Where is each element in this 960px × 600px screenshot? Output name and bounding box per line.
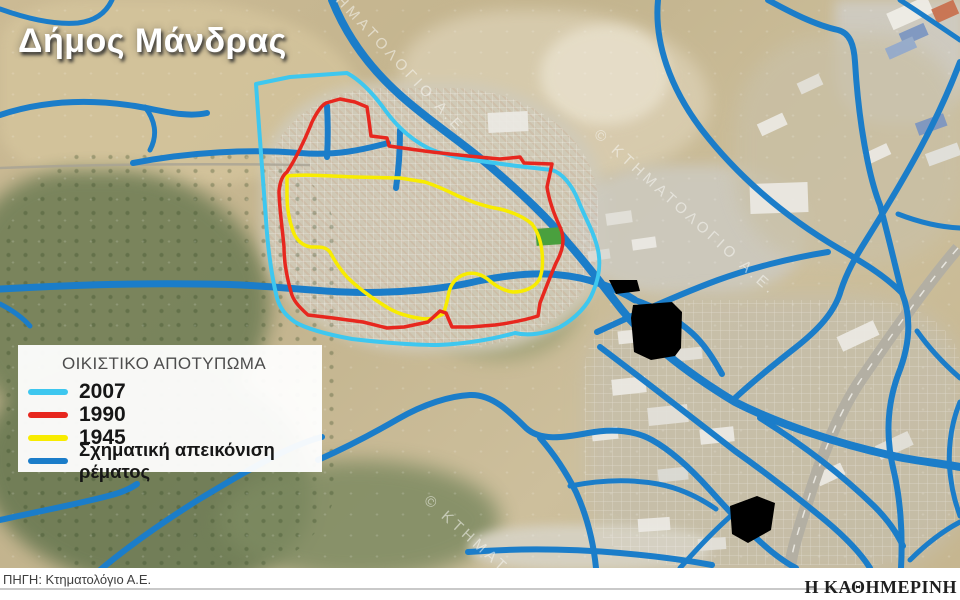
highway <box>790 248 958 568</box>
source-note: ΠΗΓΗ: Κτηματολόγιο Α.Ε. <box>3 572 151 587</box>
swatch-stream <box>28 458 68 464</box>
swatch-1945 <box>28 435 68 441</box>
legend: ΟΙΚΙΣΤΙΚΟ ΑΠΟΤΥΠΩΜΑ 2007 1990 1945 Σχημα… <box>18 345 322 472</box>
footer: ΠΗΓΗ: Κτηματολόγιο Α.Ε. Η ΚΑΘΗΜΕΡΙΝΗ <box>0 568 960 600</box>
legend-row-1990: 1990 <box>28 403 314 426</box>
legend-label-2007: 2007 <box>79 380 126 404</box>
map-overlay <box>0 0 960 568</box>
swatch-2007 <box>28 389 68 395</box>
legend-label-stream: Σχηματική απεικόνιση ρέματος <box>79 439 314 483</box>
footer-divider <box>0 588 852 590</box>
satellite-map: © ΚΤΗΜΑΤΟΛΟΓΙΟ Α.Ε. © ΚΤΗΜΑΤΟΛΟΓΙΟ Α.Ε. … <box>0 0 960 568</box>
legend-title: ΟΙΚΙΣΤΙΚΟ ΑΠΟΤΥΠΩΜΑ <box>62 354 314 374</box>
outline-1945 <box>287 175 543 319</box>
legend-row-2007: 2007 <box>28 380 314 403</box>
newspaper-logo: Η ΚΑΘΗΜΕΡΙΝΗ <box>805 577 957 598</box>
map-title: Δήμος Μάνδρας <box>18 22 287 61</box>
swatch-1990 <box>28 412 68 418</box>
infographic: © ΚΤΗΜΑΤΟΛΟΓΙΟ Α.Ε. © ΚΤΗΜΑΤΟΛΟΓΙΟ Α.Ε. … <box>0 0 960 600</box>
legend-label-1990: 1990 <box>79 403 126 427</box>
legend-row-stream: Σχηματική απεικόνιση ρέματος <box>28 449 314 472</box>
